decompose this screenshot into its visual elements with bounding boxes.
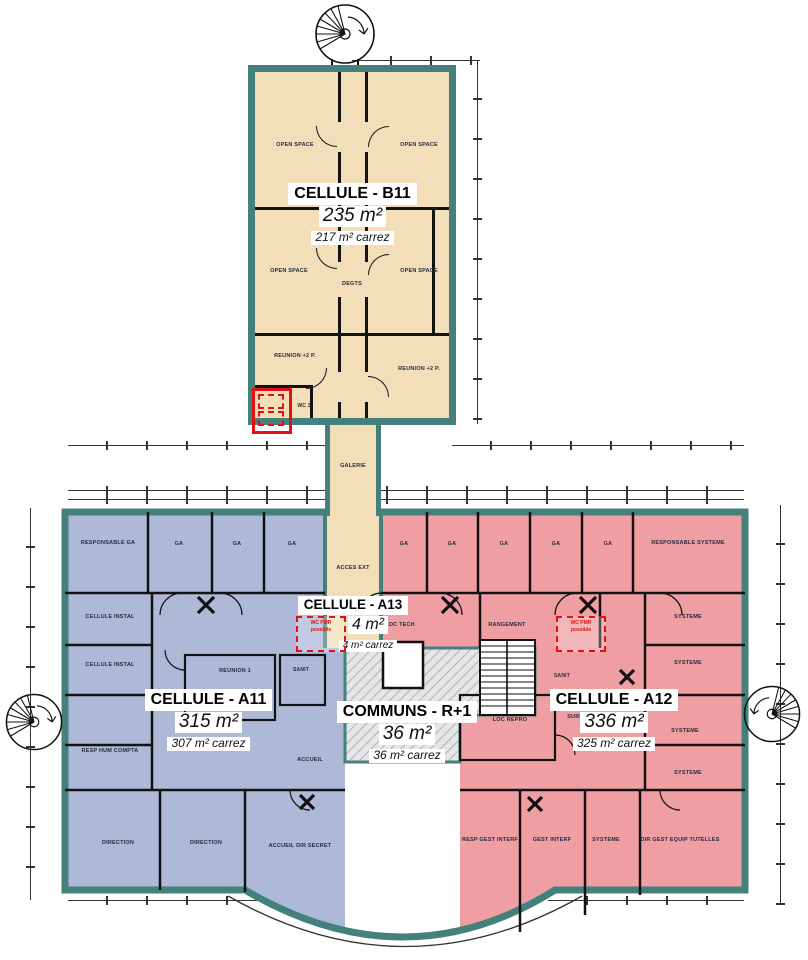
cell-title-a11: CELLULE - A11 315 m² 307 m² carrez <box>126 690 291 752</box>
cell-area: 235 m² <box>319 206 386 227</box>
spiral-stair-right <box>740 660 804 768</box>
cell-carrez: 307 m² carrez <box>167 737 249 751</box>
room-responsable-systeme: RESPONSABLE SYSTEME <box>634 540 742 546</box>
cell-area: 315 m² <box>175 712 242 733</box>
room-responsable-ga: RESPONSABLE GA <box>68 540 148 546</box>
spiral-stair-left <box>2 668 66 776</box>
room-direction-2: DIRECTION <box>168 840 244 846</box>
room-degts: DEGTS <box>330 281 374 287</box>
dimension-line-mid-full-2 <box>68 495 744 504</box>
room-open-space-2: OPEN SPACE <box>386 142 452 148</box>
dimension-line-b11-right <box>473 60 482 424</box>
wc-highlight-box <box>252 388 292 434</box>
cell-area: 336 m² <box>580 712 647 733</box>
room-ga: GA <box>382 541 426 547</box>
cell-carrez: 4 m² carrez <box>339 640 398 652</box>
room-open-space-1: OPEN SPACE <box>262 142 328 148</box>
room-reunion-2p-1: REUNION +2 P. <box>260 353 330 359</box>
wc-pmr-label: WC PMR <box>311 620 332 626</box>
room-systeme-4: SYSTEME <box>652 770 724 776</box>
room-rangement: RANGEMENT <box>472 622 542 628</box>
room-ga: GA <box>155 541 203 547</box>
room-direction-1: DIRECTION <box>80 840 156 846</box>
room-systeme-1: SYSTEME <box>652 614 724 620</box>
room-ga: GA <box>482 541 526 547</box>
room-acces-ext: ACCES EXT <box>328 565 378 571</box>
wc-pmr-label2: possible <box>311 627 331 633</box>
room-systeme-2: SYSTEME <box>652 660 724 666</box>
room-open-space-4: OPEN SPACE <box>388 268 450 274</box>
room-reunion-2p-2: REUNION +2 P. <box>384 366 454 372</box>
cell-name: COMMUNS - R+1 <box>338 702 476 722</box>
spiral-stair-top <box>305 1 385 67</box>
cell-name: CELLULE - A13 <box>299 597 408 614</box>
wc-pmr-label2: possible <box>571 627 591 633</box>
cell-title-b11: CELLULE - B11 235 m² 217 m² carrez <box>280 184 425 246</box>
room-cellule-instal-2: CELLULE INSTAL <box>68 662 152 668</box>
room-cellule-instal-1: CELLULE INSTAL <box>68 614 152 620</box>
cell-area: 4 m² <box>348 616 388 634</box>
cell-name: CELLULE - B11 <box>289 184 415 204</box>
floor-plan: OPEN SPACE OPEN SPACE OPEN SPACE DEGTS O… <box>0 0 808 960</box>
room-ga: GA <box>214 541 260 547</box>
dimension-line-mid-right <box>452 441 744 450</box>
cell-carrez: 36 m² carrez <box>369 749 444 763</box>
room-reunion-1: REUNION 1 <box>196 668 274 674</box>
dimension-line-mid-full <box>68 486 744 495</box>
room-sanit-right: SANIT <box>540 674 584 680</box>
room-accueil: ACCUEIL <box>280 757 340 763</box>
wc-pmr-box-a12: WC PMR possible <box>556 616 606 652</box>
room-ga: GA <box>586 541 630 547</box>
room-sanit-left: SANIT <box>280 668 322 674</box>
room-accueil-dir-secret: ACCUEIL DIR SECRET <box>248 843 352 849</box>
room-open-space-3: OPEN SPACE <box>258 268 320 274</box>
room-galerie: GALERIE <box>328 463 378 469</box>
cell-title-a12: CELLULE - A12 336 m² 325 m² carrez <box>530 690 698 752</box>
dimension-line-mid-left <box>68 441 334 450</box>
cell-name: CELLULE - A11 <box>146 690 272 710</box>
cell-carrez: 325 m² carrez <box>573 737 655 751</box>
room-ga: GA <box>534 541 578 547</box>
cell-carrez: 217 m² carrez <box>311 231 393 245</box>
cell-title-communs: COMMUNS - R+1 36 m² 36 m² carrez <box>332 702 482 764</box>
room-ga: GA <box>266 541 318 547</box>
cell-area: 36 m² <box>379 724 436 745</box>
wc-pmr-label: WC PMR <box>571 620 592 626</box>
room-ga: GA <box>430 541 474 547</box>
wc-pmr-box-a13: WC PMR possible <box>296 616 346 652</box>
room-dir-gest-equip-tutelles: DIR GEST EQUIP TUTELLES <box>630 837 730 843</box>
room-wc1: WC 1 <box>290 404 318 410</box>
room-gest-interf: GEST INTERF <box>520 837 584 843</box>
cell-name: CELLULE - A12 <box>551 690 678 710</box>
room-systeme-5: SYSTEME <box>578 837 634 843</box>
